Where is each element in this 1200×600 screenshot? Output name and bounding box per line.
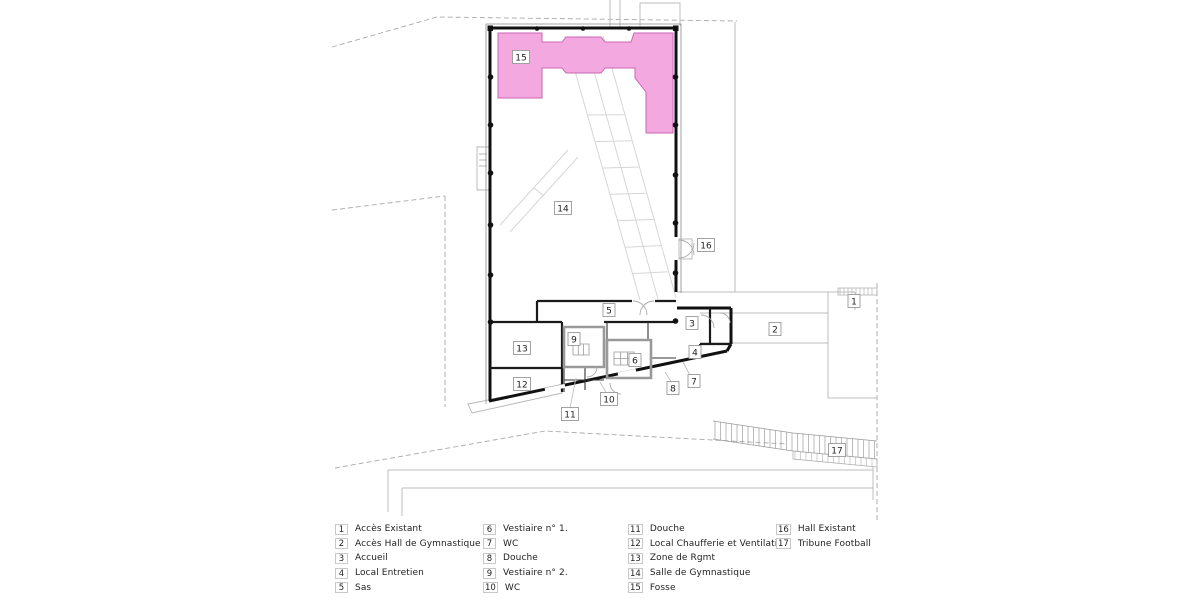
legend-label: Accès Hall de Gymnastique xyxy=(355,539,481,549)
legend-row: 6Vestiaire n° 1. xyxy=(483,522,568,537)
fosse-highlight xyxy=(498,33,673,133)
legend-row: 2Accès Hall de Gymnastique xyxy=(335,537,481,552)
plan-label-number: 16 xyxy=(700,241,712,251)
legend-row: 8Douche xyxy=(483,551,568,566)
legend-number: 11 xyxy=(628,524,643,535)
legend-number: 10 xyxy=(483,582,498,593)
legend-column: 11Douche12Local Chaufferie et Ventilatio… xyxy=(628,522,789,595)
floor-plan-canvas: 1234567891011121314151617 1Accès Existan… xyxy=(0,0,1200,600)
exterior-stair-outline xyxy=(468,147,562,413)
legend-label: Sas xyxy=(355,583,371,593)
legend-column: 6Vestiaire n° 1.7WC8Douche9Vestiaire n° … xyxy=(483,522,568,595)
legend-row: 10WC xyxy=(483,580,568,595)
legend-number: 16 xyxy=(776,524,791,535)
plan-label-number: 3 xyxy=(689,319,695,329)
legend-label: Hall Existant xyxy=(798,524,856,534)
legend-row: 12Local Chaufferie et Ventilation xyxy=(628,537,789,552)
legend-row: 7WC xyxy=(483,537,568,552)
plan-label-number: 10 xyxy=(603,395,615,405)
plan-label-number: 12 xyxy=(516,380,527,390)
legend-number: 6 xyxy=(483,524,496,535)
legend-row: 9Vestiaire n° 2. xyxy=(483,566,568,581)
legend-number: 5 xyxy=(335,582,348,593)
legend-number: 9 xyxy=(483,568,496,579)
legend-label: Douche xyxy=(503,553,538,563)
legend-label: Salle de Gymnastique xyxy=(650,568,751,578)
legend-label: WC xyxy=(503,539,518,549)
legend-number: 4 xyxy=(335,568,348,579)
legend-number: 7 xyxy=(483,538,496,549)
plan-label-number: 7 xyxy=(691,377,697,387)
plan-labels: 1234567891011121314151617 xyxy=(513,51,861,457)
legend-number: 12 xyxy=(628,538,643,549)
legend-number: 8 xyxy=(483,553,496,564)
legend-label: Fosse xyxy=(650,583,676,593)
legend-label: Zone de Rgmt xyxy=(650,553,715,563)
plan-label-number: 2 xyxy=(772,325,778,335)
legend-label: Accès Existant xyxy=(355,524,422,534)
floor-plan-svg: 1234567891011121314151617 xyxy=(0,0,1200,600)
legend-row: 13Zone de Rgmt xyxy=(628,551,789,566)
site-context-lines xyxy=(388,0,877,516)
legend-number: 2 xyxy=(335,538,348,549)
legend-label: Tribune Football xyxy=(798,539,871,549)
legend-label: Local Entretien xyxy=(355,568,424,578)
plan-label-number: 6 xyxy=(632,356,638,366)
legend-number: 1 xyxy=(335,524,348,535)
legend-row: 5Sas xyxy=(335,580,481,595)
legend-label: Vestiaire n° 2. xyxy=(503,568,568,578)
plan-label-number: 4 xyxy=(692,348,698,358)
legend-number: 17 xyxy=(776,538,791,549)
legend-label: Douche xyxy=(650,524,685,534)
plan-label-number: 14 xyxy=(557,204,569,214)
plan-label-number: 1 xyxy=(851,297,857,307)
legend-column: 16Hall Existant17Tribune Football xyxy=(776,522,871,551)
plan-label-number: 9 xyxy=(571,335,577,345)
legend-number: 15 xyxy=(628,582,643,593)
legend-row: 17Tribune Football xyxy=(776,537,871,552)
legend-number: 13 xyxy=(628,553,643,564)
legend-row: 14Salle de Gymnastique xyxy=(628,566,789,581)
tribune-hatch xyxy=(713,288,877,467)
property-boundary-dashed xyxy=(332,17,877,520)
legend-row: 1Accès Existant xyxy=(335,522,481,537)
plan-label-number: 13 xyxy=(516,344,527,354)
door-swing-arcs xyxy=(587,240,730,394)
plan-label-number: 15 xyxy=(515,53,526,63)
legend-label: WC xyxy=(505,583,520,593)
legend-column: 1Accès Existant2Accès Hall de Gymnastiqu… xyxy=(335,522,481,595)
legend-number: 3 xyxy=(335,553,348,564)
plan-label-number: 8 xyxy=(670,384,676,394)
legend-row: 4Local Entretien xyxy=(335,566,481,581)
legend-row: 3Accueil xyxy=(335,551,481,566)
legend-label: Vestiaire n° 1. xyxy=(503,524,568,534)
legend-row: 16Hall Existant xyxy=(776,522,871,537)
legend-number: 14 xyxy=(628,568,643,579)
legend-label: Accueil xyxy=(355,553,388,563)
plan-label-number: 5 xyxy=(606,306,612,316)
plan-label-number: 17 xyxy=(831,446,842,456)
legend-row: 11Douche xyxy=(628,522,789,537)
plan-label-number: 11 xyxy=(564,410,575,420)
legend-label: Local Chaufferie et Ventilation xyxy=(650,539,789,549)
legend-row: 15Fosse xyxy=(628,580,789,595)
